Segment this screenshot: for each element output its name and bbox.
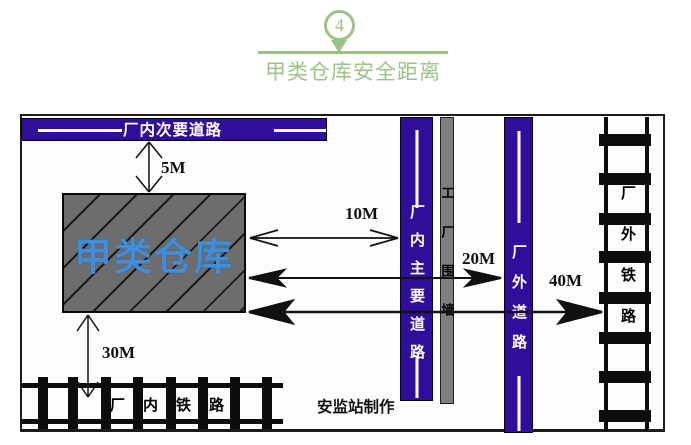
factory-wall-label: 工厂围墙: [438, 186, 457, 342]
secondary-road-bar: 厂内次要道路: [21, 118, 327, 141]
factory-wall-bar: 工厂围墙: [440, 117, 454, 404]
road-centerline: [415, 356, 418, 398]
railway-tie: [599, 410, 651, 422]
distance-label-20m: 20M: [462, 249, 495, 269]
road-centerline: [517, 131, 520, 223]
inside-railway-label: 厂内铁路: [110, 394, 242, 415]
outside-road-label: 厂外道路: [508, 244, 529, 364]
title-underline: [258, 51, 448, 54]
distance-label-10m: 10M: [345, 204, 378, 224]
railway-tie: [599, 371, 651, 383]
distance-label-30m: 30M: [102, 343, 135, 363]
road-centerline: [274, 129, 326, 132]
road-centerline: [38, 129, 122, 132]
road-centerline: [415, 130, 418, 208]
distance-label-5m: 5M: [161, 158, 186, 178]
outside-road-bar: 厂外道路: [504, 117, 533, 433]
safety-distance-diagram-page: 4 甲类仓库安全距离 厂内次要道路 厂内主要道路 工厂围墙 厂外道路 厂外铁路 …: [0, 0, 691, 445]
warehouse-label: 甲类仓库: [74, 226, 234, 281]
credit-text: 安监站制作: [317, 395, 395, 417]
warehouse-box: 甲类仓库: [62, 193, 246, 313]
railway-tie: [599, 173, 651, 185]
outside-railway-label: 厂外铁路: [617, 185, 638, 349]
step-badge-number: 4: [335, 15, 344, 36]
railway-tie: [38, 377, 48, 429]
pin-tail-icon: [331, 40, 347, 53]
railway-tie: [599, 134, 651, 146]
step-badge: 4: [324, 10, 355, 41]
main-road-bar: 厂内主要道路: [400, 117, 433, 401]
railway-tie: [68, 377, 78, 429]
main-road-label: 厂内主要道路: [406, 204, 427, 372]
outside-railway-rail: [604, 117, 608, 431]
distance-label-40m: 40M: [549, 271, 582, 291]
page-title: 甲类仓库安全距离: [253, 56, 453, 86]
road-centerline: [517, 376, 520, 431]
secondary-road-label: 厂内次要道路: [123, 119, 222, 142]
railway-tie: [262, 377, 272, 429]
inside-railway-rail: [21, 419, 283, 424]
inside-railway-rail: [21, 383, 283, 388]
outside-railway-rail: [645, 117, 649, 431]
